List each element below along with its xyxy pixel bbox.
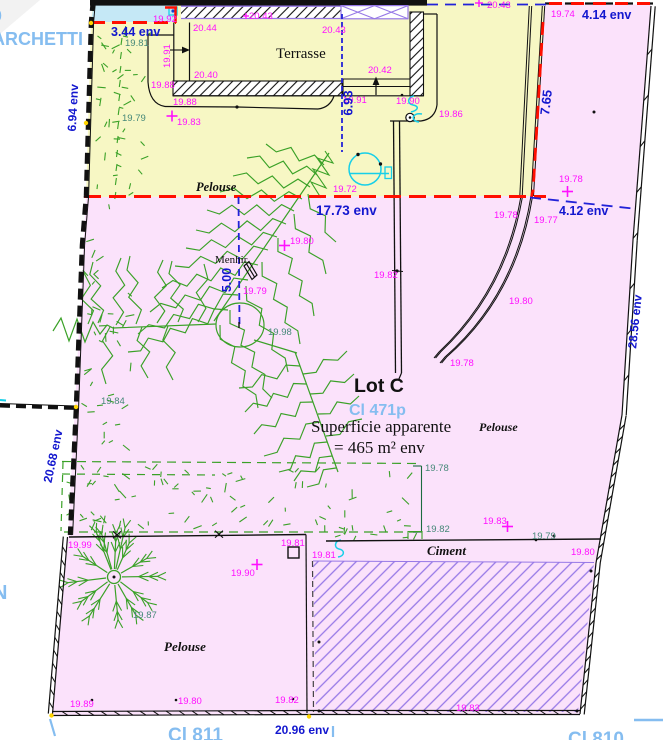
svg-text:Superficie apparente: Superficie apparente <box>311 417 451 436</box>
svg-text:19.90: 19.90 <box>231 568 255 579</box>
svg-text:19.99: 19.99 <box>68 540 92 551</box>
svg-text:19.81: 19.81 <box>125 38 149 49</box>
svg-text:19.82: 19.82 <box>426 524 450 535</box>
svg-text:4.14 env: 4.14 env <box>582 8 631 22</box>
svg-text:ARCHETTI: ARCHETTI <box>0 29 83 49</box>
svg-text:Pelouse: Pelouse <box>196 180 237 194</box>
svg-text:19.78: 19.78 <box>559 174 583 185</box>
svg-text:19.82: 19.82 <box>374 270 398 281</box>
svg-text:3.44 env: 3.44 env <box>111 25 160 39</box>
svg-text:Cl 811: Cl 811 <box>168 725 223 740</box>
svg-text:20.40: 20.40 <box>194 70 218 81</box>
svg-text:20.43: 20.43 <box>322 25 346 36</box>
svg-text:20.96 env: 20.96 env <box>275 723 329 737</box>
svg-text:19.81: 19.81 <box>312 550 336 561</box>
svg-text:7.65: 7.65 <box>537 89 555 116</box>
svg-text:19.87: 19.87 <box>133 610 157 621</box>
svg-text:6.94 env: 6.94 env <box>65 83 81 131</box>
svg-text:19.78: 19.78 <box>450 358 474 369</box>
svg-text:19.80: 19.80 <box>290 236 314 247</box>
svg-text:19.78: 19.78 <box>425 463 449 474</box>
svg-text:19.80: 19.80 <box>509 296 533 307</box>
svg-text:19.88: 19.88 <box>151 80 175 91</box>
svg-text:Ciment: Ciment <box>427 543 466 558</box>
svg-text:19.83: 19.83 <box>177 117 201 128</box>
svg-text:19.80: 19.80 <box>571 547 595 558</box>
svg-text:5.00: 5.00 <box>220 268 234 292</box>
svg-text:19.72: 19.72 <box>333 184 357 195</box>
svg-text:19.89: 19.89 <box>70 699 94 710</box>
svg-text:19.92: 19.92 <box>153 14 177 25</box>
svg-text:20.43: 20.43 <box>249 11 273 22</box>
svg-text:6.93: 6.93 <box>341 90 356 115</box>
svg-text:Terrasse: Terrasse <box>276 46 326 62</box>
svg-text:= 465 m² env: = 465 m² env <box>334 438 425 457</box>
svg-text:0: 0 <box>0 8 2 25</box>
svg-text:19.88: 19.88 <box>173 97 197 108</box>
svg-text:19.91: 19.91 <box>162 44 173 68</box>
svg-text:19.78: 19.78 <box>494 210 518 221</box>
svg-text:19.83: 19.83 <box>456 703 480 714</box>
svg-text:Lot C: Lot C <box>354 375 404 397</box>
svg-text:Pelouse: Pelouse <box>479 420 518 434</box>
svg-text:19.79: 19.79 <box>532 531 556 542</box>
svg-text:N: N <box>0 582 7 604</box>
svg-text:19.90: 19.90 <box>396 96 420 107</box>
svg-text:19.79: 19.79 <box>243 286 267 297</box>
svg-text:20.44: 20.44 <box>193 23 217 34</box>
svg-text:20.43: 20.43 <box>487 0 511 11</box>
svg-text:Pelouse: Pelouse <box>164 639 206 654</box>
svg-text:19.81: 19.81 <box>281 538 305 549</box>
svg-text:19.74: 19.74 <box>551 9 575 20</box>
svg-text:19.80: 19.80 <box>178 696 202 707</box>
svg-text:20.42: 20.42 <box>368 65 392 76</box>
svg-text:19.86: 19.86 <box>439 109 463 120</box>
svg-text:4.12 env: 4.12 env <box>559 204 608 218</box>
svg-text:19.79: 19.79 <box>122 113 146 124</box>
svg-text:19.77: 19.77 <box>534 215 558 226</box>
svg-text:Menhir: Menhir <box>215 254 248 266</box>
svg-text:19.82: 19.82 <box>275 695 299 706</box>
svg-text:19.84: 19.84 <box>101 396 125 407</box>
svg-text:17.73 env: 17.73 env <box>316 203 377 218</box>
svg-text:19.83: 19.83 <box>483 516 507 527</box>
svg-text:Cl 810: Cl 810 <box>568 729 624 740</box>
svg-text:19.98: 19.98 <box>268 327 292 338</box>
